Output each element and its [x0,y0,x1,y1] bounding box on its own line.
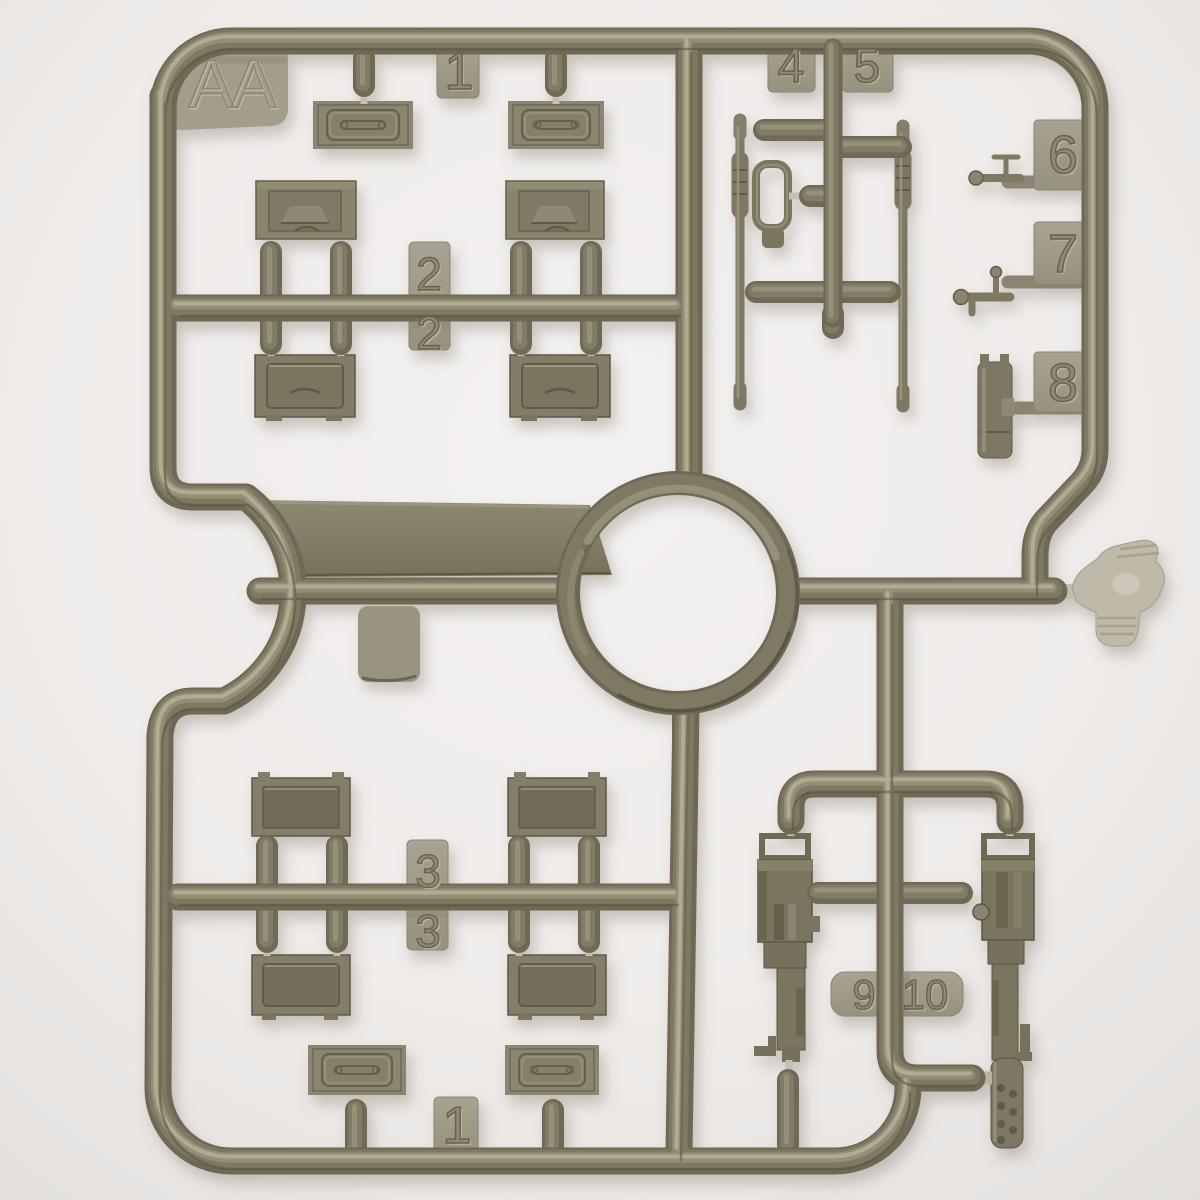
svg-text:AA: AA [189,46,277,122]
svg-text:10: 10 [902,971,949,1018]
svg-text:5: 5 [854,40,881,93]
svg-text:1: 1 [443,1097,472,1155]
svg-text:3: 3 [415,845,441,897]
svg-text:6: 6 [1048,125,1078,185]
svg-text:3: 3 [415,905,441,957]
svg-text:2: 2 [416,307,442,359]
svg-text:9: 9 [852,971,875,1018]
svg-text:4: 4 [778,40,805,93]
svg-text:7: 7 [1048,224,1078,284]
svg-text:2: 2 [416,248,442,300]
svg-text:8: 8 [1048,353,1078,413]
svg-text:1: 1 [445,43,474,101]
